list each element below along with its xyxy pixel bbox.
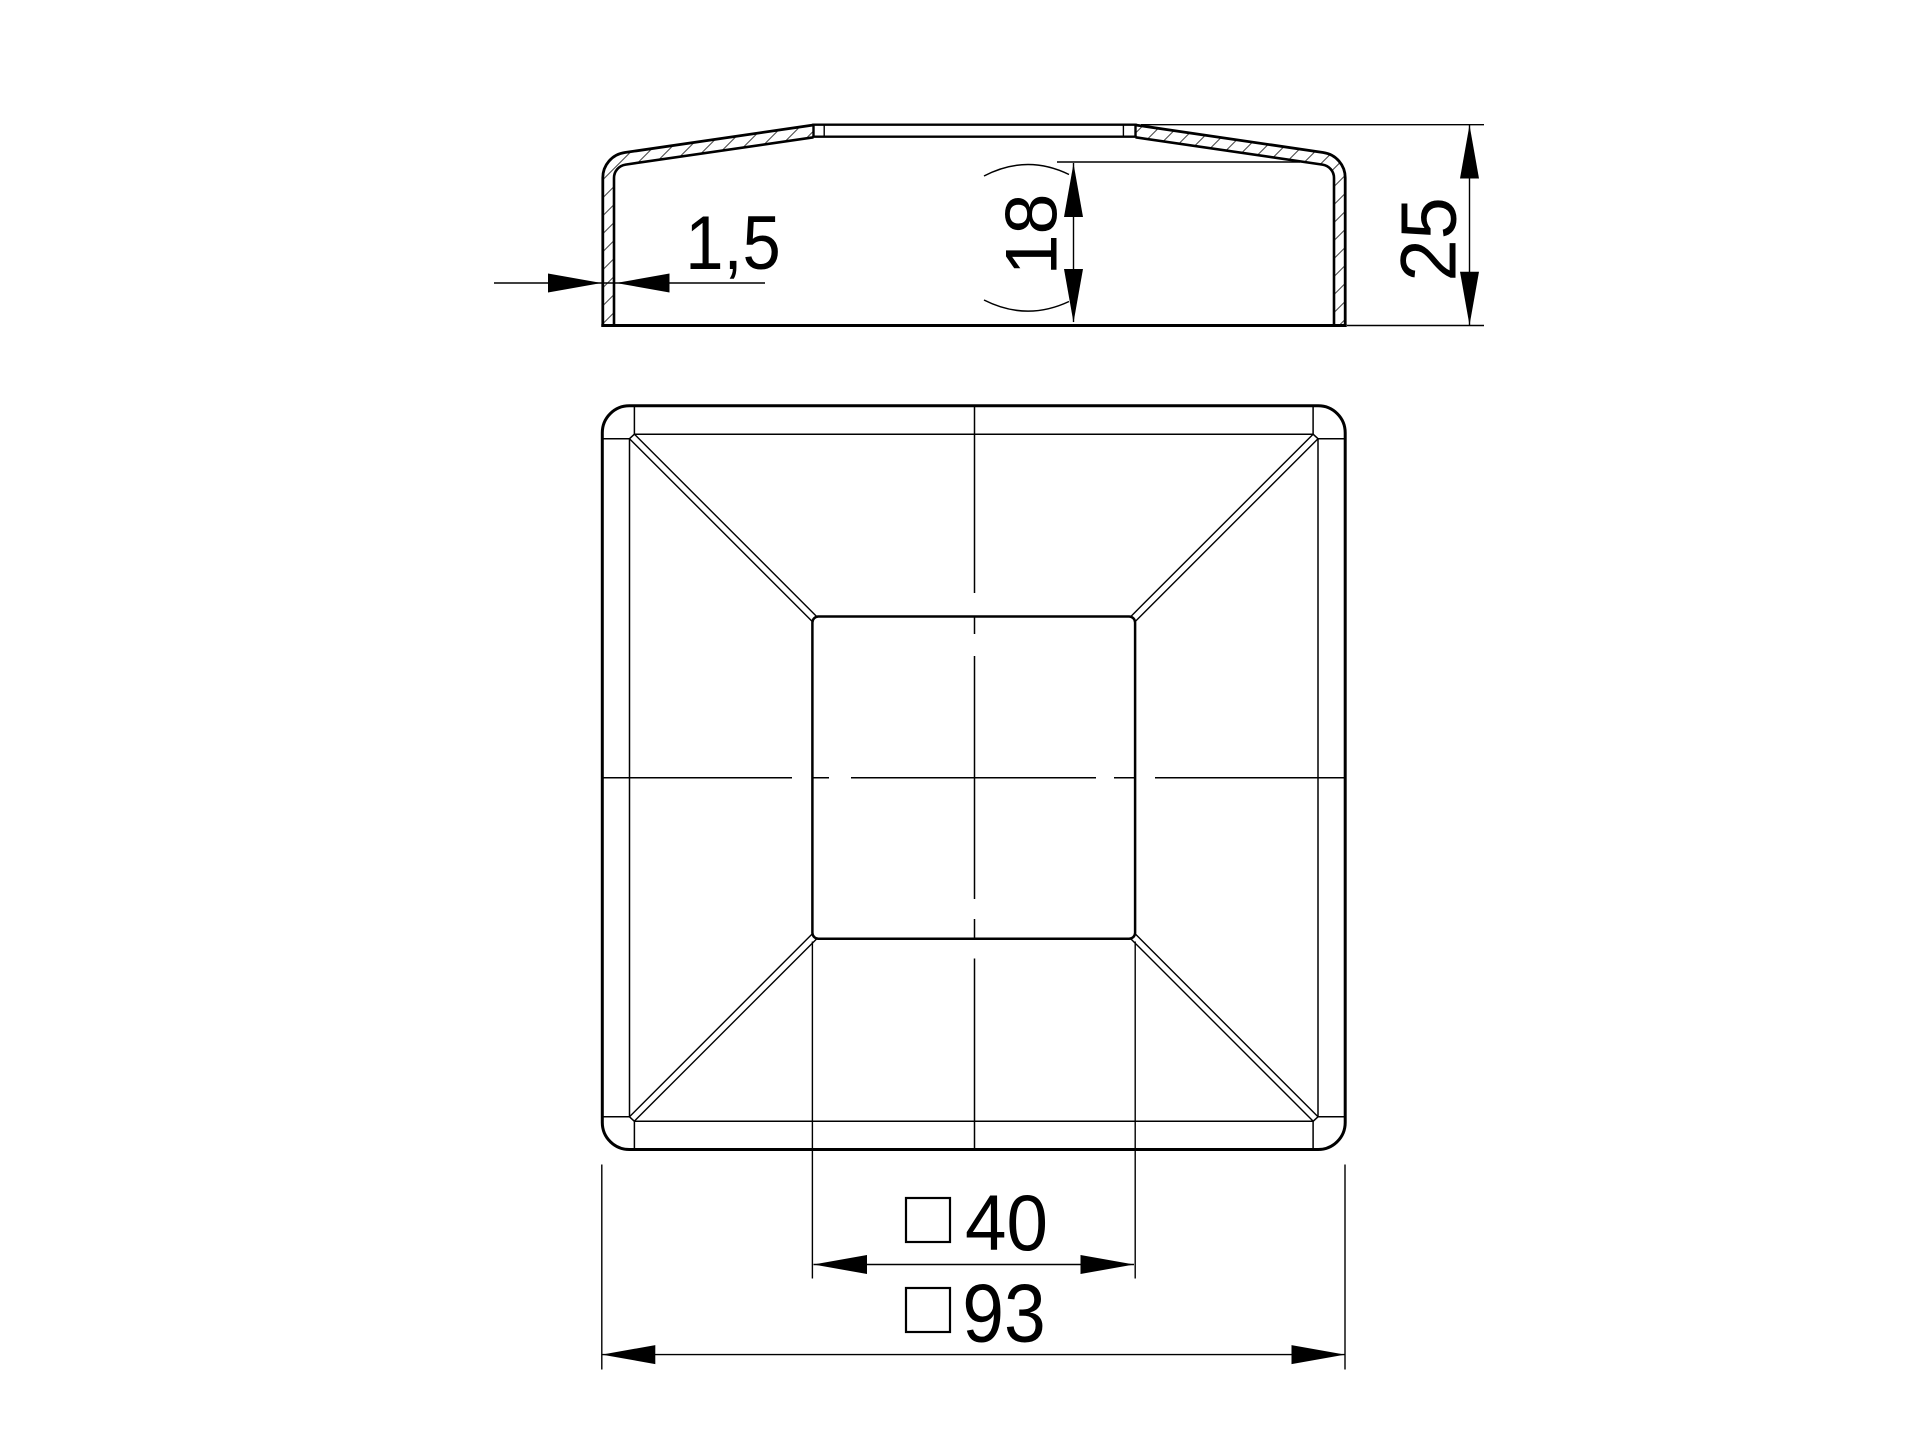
svg-text:25: 25 xyxy=(1385,197,1473,281)
svg-text:93: 93 xyxy=(962,1267,1045,1359)
svg-text:18: 18 xyxy=(990,194,1073,276)
svg-text:40: 40 xyxy=(965,1179,1048,1268)
svg-text:1,5: 1,5 xyxy=(685,201,781,286)
